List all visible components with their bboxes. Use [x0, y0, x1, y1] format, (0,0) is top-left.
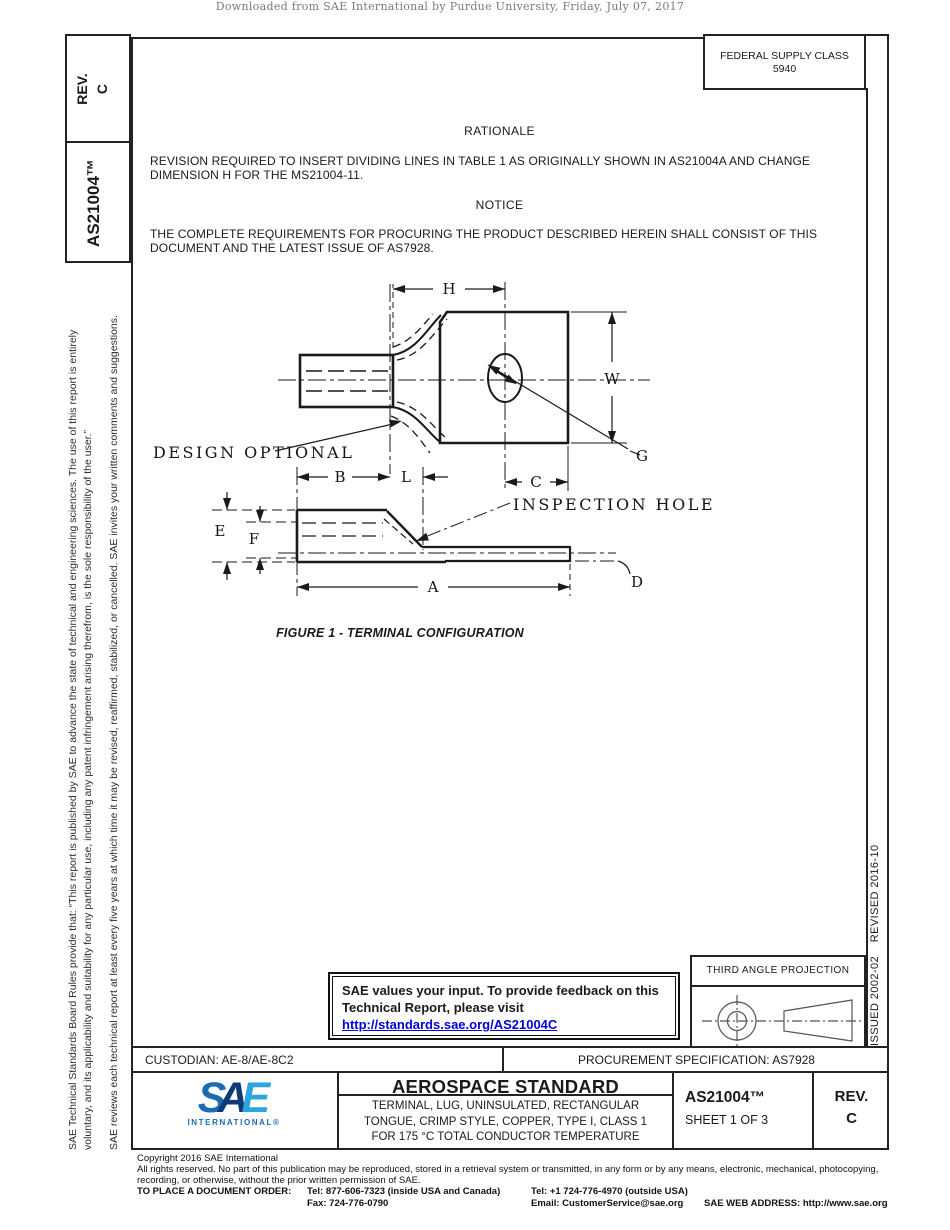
title-block-rev-value: C: [814, 1108, 889, 1130]
subtitle-line1: TERMINAL, LUG, UNINSULATED, RECTANGULAR: [339, 1099, 672, 1115]
figure-caption: FIGURE 1 - TERMINAL CONFIGURATION: [150, 626, 650, 640]
footer-tel-outside: Tel: +1 724-776-4970 (outside USA): [531, 1186, 688, 1197]
inspection-hole-label: INSPECTION HOLE: [513, 495, 715, 514]
document-page: Downloaded from SAE International by Pur…: [0, 0, 950, 1230]
rev-box-value: C: [92, 40, 112, 138]
footer-web: SAE WEB ADDRESS: http://www.sae.org: [704, 1198, 888, 1209]
custodian-label: CUSTODIAN: AE-8/AE-8C2: [145, 1053, 294, 1067]
footer-fax: Fax: 724-776-0790: [307, 1198, 388, 1209]
projection-box: THIRD ANGLE PROJECTION: [690, 955, 866, 1048]
procurement-label: PROCUREMENT SPECIFICATION: AS7928: [504, 1053, 889, 1067]
doc-number-vertical: AS21004™: [74, 149, 118, 257]
frame-top: [131, 37, 705, 39]
footer-rights-2: recording, or otherwise, without the pri…: [137, 1175, 421, 1186]
rationale-heading: RATIONALE: [131, 124, 868, 138]
sae-logo-subtext: INTERNATIONAL®: [131, 1118, 337, 1127]
disclaimer-line-3: SAE reviews each technical report at lea…: [107, 262, 122, 1150]
title-block-rev-label: REV.: [814, 1086, 889, 1108]
title-block-divider-2: [672, 1073, 674, 1148]
footer-order-label: TO PLACE A DOCUMENT ORDER:: [137, 1186, 291, 1197]
dim-label-f: F: [249, 530, 259, 548]
fsc-label: FEDERAL SUPPLY CLASS: [705, 50, 864, 63]
notice-heading: NOTICE: [131, 198, 868, 212]
footer-tel-inside: Tel: 877-606-7323 (inside USA and Canada…: [307, 1186, 500, 1197]
title-block-top-border: [131, 1071, 889, 1073]
sheet-number: SHEET 1 OF 3: [685, 1113, 768, 1127]
aerospace-standard-title: AEROSPACE STANDARD: [339, 1076, 672, 1098]
notice-body-line1: THE COMPLETE REQUIREMENTS FOR PROCURING …: [150, 228, 860, 242]
dim-label-a: A: [427, 578, 439, 596]
notice-body-line2: DOCUMENT AND THE LATEST ISSUE OF AS7928.: [150, 242, 860, 256]
fsc-value: 5940: [705, 63, 864, 76]
dim-label-l: L: [401, 468, 411, 486]
footer-copyright: Copyright 2016 SAE International: [137, 1153, 278, 1164]
subtitle-line3: FOR 175 °C TOTAL CONDUCTOR TEMPERATURE: [339, 1130, 672, 1146]
projection-title: THIRD ANGLE PROJECTION: [692, 957, 864, 987]
info-row-top-border: [131, 1046, 889, 1048]
design-optional-label: DESIGN OPTIONAL: [153, 443, 354, 462]
sae-logo-e: E: [242, 1078, 271, 1118]
subtitle-line2: TONGUE, CRIMP STYLE, COPPER, TYPE I, CLA…: [339, 1115, 672, 1131]
footer-rights-1: All rights reserved. No part of this pub…: [137, 1164, 897, 1175]
dim-label-g: G: [636, 447, 648, 465]
rev-box: REV. C: [65, 34, 131, 143]
footer-email: Email: CustomerService@sae.org: [531, 1198, 683, 1209]
download-notice: Downloaded from SAE International by Pur…: [0, 0, 900, 13]
title-block-doc-number: AS21004™: [685, 1089, 765, 1107]
dim-label-w: W: [604, 370, 620, 388]
strip-top: [866, 34, 889, 36]
frame-bottom: [131, 1148, 889, 1150]
sae-disclaimer: SAE Technical Standards Board Rules prov…: [66, 262, 128, 1150]
feedback-line1: SAE values your input. To provide feedba…: [342, 982, 666, 999]
sae-logo: SAE INTERNATIONAL®: [131, 1078, 337, 1127]
rev-box-label: REV.: [72, 40, 92, 138]
feedback-box: SAE values your input. To provide feedba…: [328, 972, 680, 1040]
issued-revised-vertical: ISSUED 2002-02 REVISED 2016-10: [869, 744, 889, 1046]
feedback-link[interactable]: http://standards.sae.org/AS21004C: [342, 1017, 557, 1032]
rationale-body-line1: REVISION REQUIRED TO INSERT DIVIDING LIN…: [150, 155, 860, 169]
dim-label-d: D: [631, 573, 643, 591]
dim-label-h: H: [442, 280, 455, 298]
rationale-body-line2: DIMENSION H FOR THE MS21004-11.: [150, 169, 860, 183]
federal-supply-class-box: FEDERAL SUPPLY CLASS 5940: [703, 34, 866, 90]
dim-label-c: C: [530, 473, 541, 491]
feedback-line2: Technical Report, please visit: [342, 1000, 524, 1015]
frame-right-inner: [866, 88, 868, 1048]
disclaimer-line-1: SAE Technical Standards Board Rules prov…: [66, 262, 81, 1150]
dim-label-b: B: [334, 468, 345, 486]
third-angle-projection-symbol: [692, 987, 864, 1048]
terminal-configuration-drawing: H W G C B L E F A D DESIGN OPTIONAL INSP…: [150, 270, 850, 660]
doc-number-box: AS21004™: [65, 141, 131, 263]
disclaimer-line-2: voluntary, and its applicability and sui…: [81, 262, 96, 1150]
dim-label-e: E: [215, 522, 226, 540]
